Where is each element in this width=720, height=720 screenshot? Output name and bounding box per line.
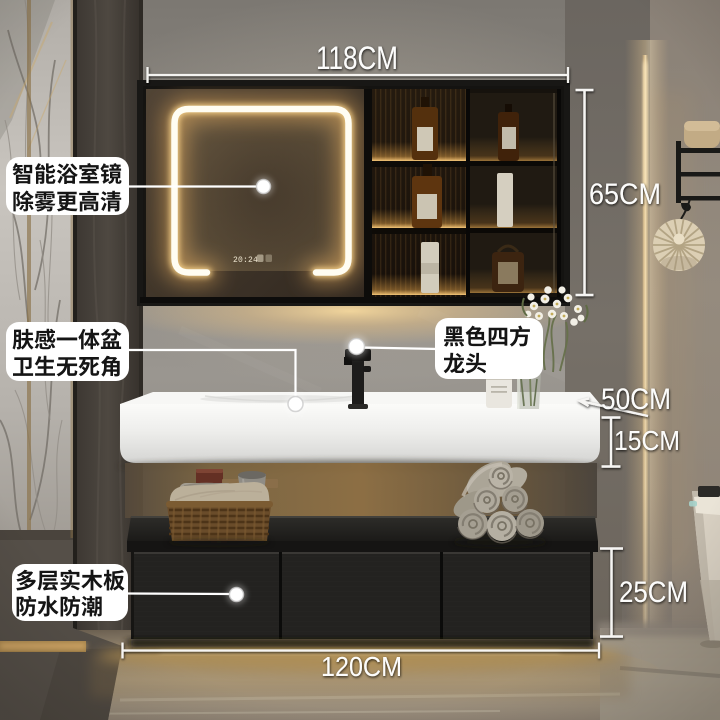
svg-text:50CM: 50CM — [601, 383, 671, 416]
svg-text:65CM: 65CM — [589, 178, 661, 211]
svg-text:15CM: 15CM — [614, 425, 680, 456]
svg-text:25CM: 25CM — [619, 576, 688, 609]
svg-text:118CM: 118CM — [316, 40, 398, 76]
svg-text:120CM: 120CM — [321, 651, 402, 682]
